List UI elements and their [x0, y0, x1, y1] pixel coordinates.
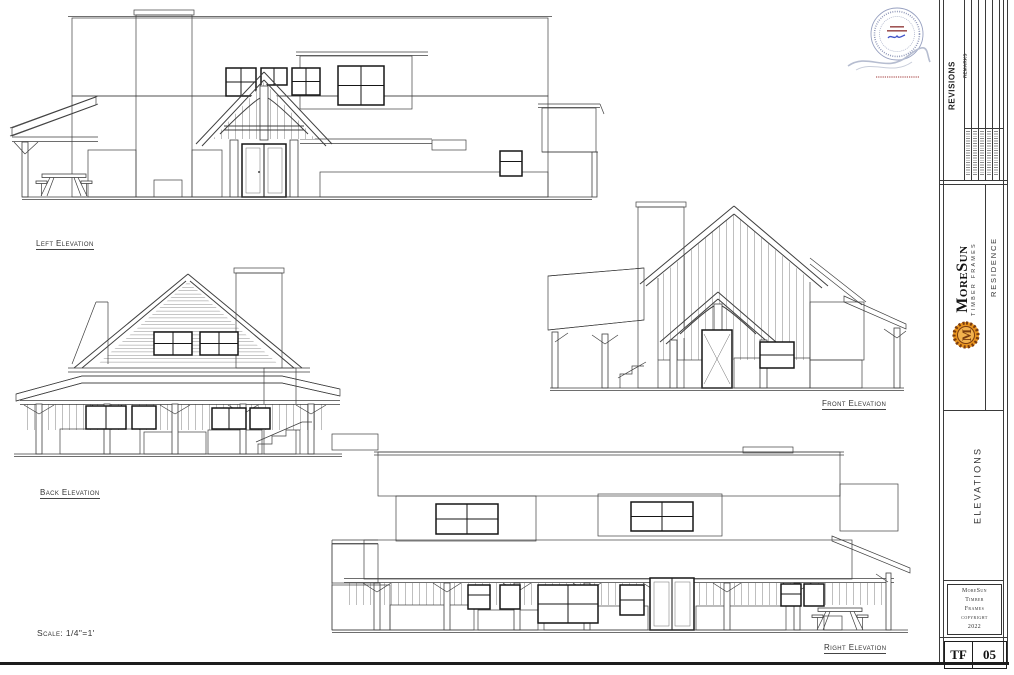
revision-entry-marks — [994, 131, 998, 176]
handwritten-signature — [848, 48, 930, 66]
drawing-sheet: .o{fill:none;stroke:#3f3f3f;stroke-width… — [0, 0, 1014, 675]
front-elevation-label: Front Elevation — [822, 400, 886, 410]
entry-door — [702, 330, 732, 388]
stone-chimney — [134, 10, 194, 197]
dormer-bands — [396, 494, 722, 541]
revision-entry-marks — [987, 131, 991, 176]
porch-roof — [16, 376, 340, 401]
picnic-table — [36, 174, 92, 196]
side-double-door — [650, 578, 694, 630]
sheet-number-box: TF 05 — [944, 641, 1007, 669]
right-elevation-drawing — [332, 434, 910, 633]
sun-logo-icon: M — [951, 320, 981, 350]
copyright-line: Timber — [965, 596, 984, 605]
left-elevation-drawing — [10, 10, 604, 200]
logo-name: MoreSun — [955, 245, 971, 312]
revision-entry-marks — [966, 131, 970, 176]
stone-base — [88, 150, 136, 197]
front-window — [760, 342, 794, 368]
left-wing — [332, 540, 390, 630]
professional-engineer-seal — [848, 8, 930, 77]
ground-line — [332, 630, 908, 633]
seal-signature-mark — [888, 35, 905, 38]
basement-window — [500, 151, 522, 176]
elevation-drawings-canvas: .o{fill:none;stroke:#3f3f3f;stroke-width… — [0, 0, 1014, 675]
copyright-line: copyright — [961, 614, 988, 623]
picnic-table — [812, 608, 868, 630]
project-name: RESIDENCE — [986, 228, 1001, 306]
revisions-header: REVISIONS — [944, 55, 960, 117]
sheet-title: ELEVATIONS — [969, 430, 986, 540]
copyright-line: 2022 — [968, 623, 981, 632]
entry-double-door — [242, 144, 286, 197]
back-elevation-label: Back Elevation — [40, 489, 100, 499]
revision-entry-marks — [980, 131, 984, 176]
revisions-remarks-header: REMARKS — [961, 48, 969, 84]
left-elevation-label: Left Elevation — [36, 240, 94, 250]
right-porch — [844, 296, 906, 388]
logo-tagline: Timber Frames — [972, 242, 978, 316]
logo-monogram: M — [959, 329, 974, 341]
left-porch — [548, 268, 646, 388]
front-elevation-drawing — [548, 202, 906, 391]
copyright-box: MoreSun Timber Frames copyright 2022 — [947, 584, 1002, 635]
right-elevation-label: Right Elevation — [824, 644, 886, 654]
back-elevation-drawing — [14, 268, 342, 457]
left-porch — [10, 96, 98, 197]
copyright-line: Frames — [965, 605, 984, 614]
scale-note: Scale: 1/4"=1' — [37, 629, 95, 638]
ground-line — [22, 197, 592, 200]
copyright-line: MoreSun — [962, 587, 987, 596]
sheet-bottom-border — [0, 662, 1009, 665]
revision-entry-marks — [973, 131, 977, 176]
moresun-logo: M MoreSun Timber Frames — [948, 216, 984, 350]
